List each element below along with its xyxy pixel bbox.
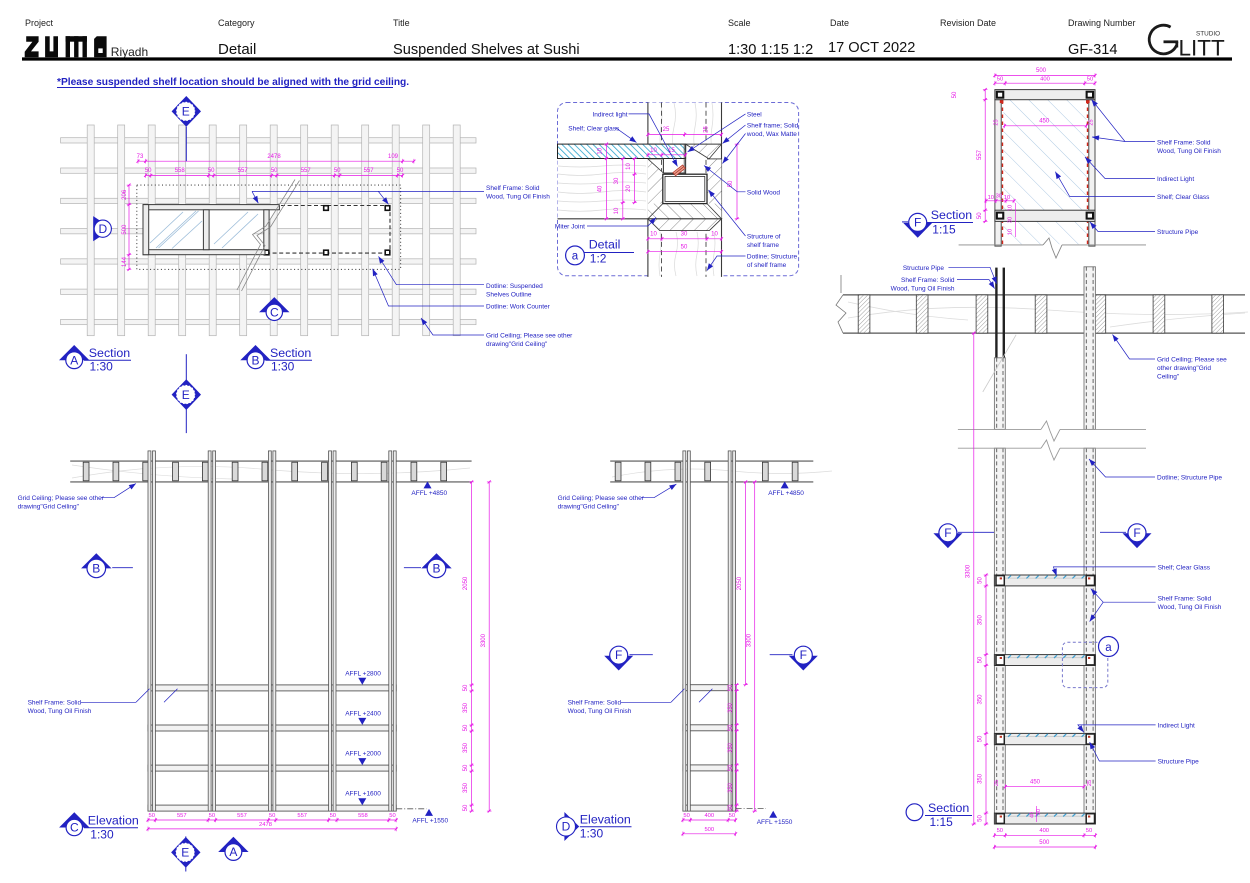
svg-text:wood, Wax Matte: wood, Wax Matte xyxy=(746,131,797,138)
svg-text:50: 50 xyxy=(978,577,984,584)
svg-text:a: a xyxy=(1105,642,1112,654)
svg-text:30: 30 xyxy=(1008,217,1014,223)
svg-text:1:30 1:15 1:2: 1:30 1:15 1:2 xyxy=(728,42,813,58)
svg-text:Wood, Tung Oil Finish: Wood, Tung Oil Finish xyxy=(568,708,632,715)
svg-text:350: 350 xyxy=(728,742,734,753)
svg-text:AFFL +1550: AFFL +1550 xyxy=(412,817,448,824)
svg-text:Date: Date xyxy=(830,18,849,28)
svg-text:Riyadh: Riyadh xyxy=(111,45,148,59)
svg-text:2050: 2050 xyxy=(463,576,469,590)
svg-text:350: 350 xyxy=(728,782,734,793)
svg-text:C: C xyxy=(270,306,279,320)
svg-text:109: 109 xyxy=(388,154,399,160)
svg-text:F: F xyxy=(800,648,807,662)
svg-text:Grid Ceiling; Please see other: Grid Ceiling; Please see other xyxy=(486,333,573,340)
svg-text:50: 50 xyxy=(334,168,341,174)
svg-text:50: 50 xyxy=(271,168,278,174)
svg-text:Elevation: Elevation xyxy=(580,813,631,827)
svg-text:50: 50 xyxy=(330,813,336,819)
svg-text:50: 50 xyxy=(269,813,275,819)
svg-text:3300: 3300 xyxy=(481,633,487,647)
svg-text:50: 50 xyxy=(148,813,154,819)
svg-text:3300: 3300 xyxy=(965,564,971,578)
svg-text:Section: Section xyxy=(270,346,311,360)
svg-text:50: 50 xyxy=(208,168,215,174)
svg-text:Shelves Outline: Shelves Outline xyxy=(486,292,532,299)
svg-text:40: 40 xyxy=(598,185,604,192)
svg-text:50: 50 xyxy=(978,735,984,742)
svg-text:Grid Ceiling; Please see other: Grid Ceiling; Please see other xyxy=(18,495,105,502)
svg-text:Scale: Scale xyxy=(728,18,751,28)
svg-text:50: 50 xyxy=(389,813,395,819)
svg-text:20: 20 xyxy=(626,185,632,192)
svg-text:10: 10 xyxy=(650,231,657,237)
svg-text:557: 557 xyxy=(177,813,187,819)
svg-text:Dotline: Work Counter: Dotline: Work Counter xyxy=(486,304,551,311)
svg-text:50: 50 xyxy=(397,168,404,174)
svg-text:450: 450 xyxy=(1030,780,1041,786)
svg-text:Steel: Steel xyxy=(747,111,762,118)
svg-text:30: 30 xyxy=(996,193,1002,199)
svg-text:50: 50 xyxy=(1086,828,1092,834)
svg-text:558: 558 xyxy=(175,168,186,174)
svg-text:Revision Date: Revision Date xyxy=(940,18,996,28)
svg-text:500: 500 xyxy=(1036,68,1047,74)
svg-text:Indirect Light: Indirect Light xyxy=(1158,723,1195,730)
svg-text:10: 10 xyxy=(1008,205,1014,211)
svg-text:450: 450 xyxy=(1039,119,1050,125)
svg-text:50: 50 xyxy=(681,244,688,250)
svg-text:Dotline: Suspended: Dotline: Suspended xyxy=(486,283,543,290)
svg-text:B: B xyxy=(251,353,259,367)
svg-text:10: 10 xyxy=(598,147,604,154)
svg-text:10: 10 xyxy=(614,207,620,214)
svg-text:Wood, Tung Oil Finish: Wood, Tung Oil Finish xyxy=(486,194,550,201)
svg-text:350: 350 xyxy=(978,694,984,705)
svg-text:2478: 2478 xyxy=(267,154,281,160)
svg-text:25: 25 xyxy=(704,126,710,133)
svg-text:500: 500 xyxy=(122,224,128,235)
svg-text:50: 50 xyxy=(463,764,469,771)
svg-text:400: 400 xyxy=(1040,77,1050,83)
svg-text:F: F xyxy=(615,648,622,662)
svg-text:D: D xyxy=(98,222,107,236)
svg-text:1:30: 1:30 xyxy=(271,360,295,374)
svg-text:3300: 3300 xyxy=(746,633,752,647)
svg-text:F: F xyxy=(914,215,921,229)
svg-text:Elevation: Elevation xyxy=(88,814,139,828)
svg-text:Miter Joint: Miter Joint xyxy=(555,223,585,230)
svg-text:30: 30 xyxy=(614,177,620,184)
svg-text:Shelf; Clear Glass: Shelf; Clear Glass xyxy=(1158,565,1211,572)
svg-text:350: 350 xyxy=(978,615,984,626)
svg-text:Suspended Shelves at Sushi: Suspended Shelves at Sushi xyxy=(393,42,580,58)
svg-text:Grid Ceiling; Please see: Grid Ceiling; Please see xyxy=(1157,357,1227,364)
svg-text:other drawing"Grid: other drawing"Grid xyxy=(1157,365,1211,372)
svg-text:AFFL +1550: AFFL +1550 xyxy=(757,819,793,826)
svg-text:25: 25 xyxy=(663,127,670,133)
svg-text:50: 50 xyxy=(145,168,152,174)
svg-text:Section: Section xyxy=(89,346,130,360)
svg-text:144: 144 xyxy=(122,256,128,267)
svg-text:Indirect Light: Indirect Light xyxy=(1157,176,1194,183)
svg-text:50: 50 xyxy=(978,656,984,663)
svg-text:1:30: 1:30 xyxy=(90,360,114,374)
svg-text:558: 558 xyxy=(358,813,368,819)
svg-text:Shelf Frame: Solid: Shelf Frame: Solid xyxy=(486,185,540,192)
svg-text:Wood, Tung Oil Finish: Wood, Tung Oil Finish xyxy=(1158,604,1222,611)
svg-text:10: 10 xyxy=(711,231,718,237)
svg-text:F: F xyxy=(1133,526,1140,540)
svg-text:*Please suspended shelf locati: *Please suspended shelf location should … xyxy=(57,77,409,88)
svg-text:Section: Section xyxy=(931,208,972,222)
svg-text:206: 206 xyxy=(122,189,128,200)
svg-text:50: 50 xyxy=(728,804,734,811)
svg-text:Wood, Tung Oil Finish: Wood, Tung Oil Finish xyxy=(891,286,955,293)
svg-text:10: 10 xyxy=(626,163,632,170)
svg-text:B: B xyxy=(92,562,100,576)
svg-text:Dotline; Structure Pipe: Dotline; Structure Pipe xyxy=(1157,475,1222,482)
svg-text:50: 50 xyxy=(1036,809,1042,815)
svg-text:25: 25 xyxy=(994,119,1000,125)
svg-text:Solid Wood: Solid Wood xyxy=(747,190,781,197)
svg-text:557: 557 xyxy=(238,168,249,174)
svg-text:drawing"Grid Ceiling": drawing"Grid Ceiling" xyxy=(486,341,548,348)
svg-text:50: 50 xyxy=(463,724,469,731)
svg-text:Shelf frame; Solid: Shelf frame; Solid xyxy=(747,123,799,130)
svg-text:557: 557 xyxy=(364,168,375,174)
svg-text:AFFL +2800: AFFL +2800 xyxy=(345,670,381,677)
svg-text:50: 50 xyxy=(683,813,689,819)
svg-text:17 OCT 2022: 17 OCT 2022 xyxy=(828,40,915,56)
svg-text:Shelf Frame: Solid: Shelf Frame: Solid xyxy=(901,277,955,284)
svg-text:500: 500 xyxy=(1039,840,1050,846)
svg-text:50: 50 xyxy=(728,684,734,691)
svg-text:350: 350 xyxy=(728,702,734,713)
svg-text:Structure of: Structure of xyxy=(747,234,781,241)
svg-text:Shelf; Clear glass: Shelf; Clear glass xyxy=(568,126,620,133)
svg-text:1:30: 1:30 xyxy=(90,828,114,842)
svg-text:50: 50 xyxy=(729,813,735,819)
svg-text:50: 50 xyxy=(997,77,1003,83)
svg-text:AFFL +4850: AFFL +4850 xyxy=(768,490,804,497)
svg-text:50: 50 xyxy=(728,180,734,187)
svg-text:Shelf Frame: Solid: Shelf Frame: Solid xyxy=(1158,596,1212,603)
svg-text:40: 40 xyxy=(1030,812,1036,818)
svg-text:557: 557 xyxy=(297,813,307,819)
svg-text:1:2: 1:2 xyxy=(590,252,607,266)
svg-text:E: E xyxy=(182,388,190,402)
svg-text:25: 25 xyxy=(1089,119,1095,125)
svg-text:AFFL +4850: AFFL +4850 xyxy=(411,490,447,497)
svg-text:A: A xyxy=(70,353,78,367)
svg-text:73: 73 xyxy=(137,154,144,160)
svg-text:B: B xyxy=(432,562,440,576)
svg-text:AFFL +2000: AFFL +2000 xyxy=(345,751,381,758)
svg-text:1:15: 1:15 xyxy=(932,223,956,237)
svg-text:25: 25 xyxy=(994,780,1000,786)
svg-text:Shelf; Clear Glass: Shelf; Clear Glass xyxy=(1157,194,1210,201)
svg-text:Grid Ceiling; Please see other: Grid Ceiling; Please see other xyxy=(558,495,645,502)
svg-text:C: C xyxy=(70,821,79,835)
svg-text:30: 30 xyxy=(681,231,688,237)
svg-text:Structure Pipe: Structure Pipe xyxy=(1157,229,1199,236)
svg-text:drawing"Grid Ceiling": drawing"Grid Ceiling" xyxy=(18,504,80,511)
svg-text:Shelf Frame: Solid: Shelf Frame: Solid xyxy=(568,700,622,707)
svg-text:557: 557 xyxy=(237,813,247,819)
svg-text:F: F xyxy=(944,526,951,540)
svg-text:Section: Section xyxy=(928,801,969,815)
svg-text:Dotline; Structure: Dotline; Structure xyxy=(747,254,798,261)
svg-text:Indirect light: Indirect light xyxy=(592,111,627,118)
svg-text:A: A xyxy=(229,845,237,859)
svg-text:10: 10 xyxy=(1008,229,1014,235)
svg-text:Detail: Detail xyxy=(589,238,621,252)
svg-text:10: 10 xyxy=(650,148,657,154)
svg-text:Wood, Tung Oil Finish: Wood, Tung Oil Finish xyxy=(28,708,92,715)
svg-text:Ceiling": Ceiling" xyxy=(1157,374,1180,381)
svg-text:GF-314: GF-314 xyxy=(1068,42,1117,58)
svg-text:D: D xyxy=(562,820,571,834)
svg-text:Title: Title xyxy=(393,18,410,28)
svg-text:shelf frame: shelf frame xyxy=(747,242,780,249)
svg-text:350: 350 xyxy=(978,773,984,784)
svg-text:50: 50 xyxy=(1087,77,1093,83)
svg-text:557: 557 xyxy=(977,149,983,160)
svg-text:350: 350 xyxy=(463,742,469,753)
svg-text:350: 350 xyxy=(463,782,469,793)
svg-text:1:30: 1:30 xyxy=(580,827,604,841)
svg-text:E: E xyxy=(182,105,190,119)
svg-text:Wood, Tung Oil Finish: Wood, Tung Oil Finish xyxy=(1157,148,1221,155)
svg-text:STUDIO: STUDIO xyxy=(1196,31,1220,38)
svg-text:50: 50 xyxy=(978,815,984,822)
svg-text:of shelf frame: of shelf frame xyxy=(747,262,787,269)
svg-text:AFFL +2400: AFFL +2400 xyxy=(345,710,381,717)
svg-text:50: 50 xyxy=(952,91,958,98)
svg-text:Detail: Detail xyxy=(218,41,256,58)
svg-text:drawing"Grid Ceiling": drawing"Grid Ceiling" xyxy=(558,504,620,511)
svg-text:Shelf Frame: Solid: Shelf Frame: Solid xyxy=(1157,140,1211,147)
svg-text:50: 50 xyxy=(997,828,1003,834)
svg-text:50: 50 xyxy=(728,724,734,731)
svg-text:400: 400 xyxy=(1039,828,1049,834)
svg-text:500: 500 xyxy=(704,827,714,833)
svg-text:E: E xyxy=(181,846,189,860)
svg-text:LITT: LITT xyxy=(1179,36,1226,61)
svg-text:Category: Category xyxy=(218,18,255,28)
svg-text:10: 10 xyxy=(988,195,994,201)
svg-text:50: 50 xyxy=(977,212,983,219)
svg-text:2478: 2478 xyxy=(259,822,272,828)
svg-text:Project: Project xyxy=(25,18,54,28)
svg-text:50: 50 xyxy=(209,813,215,819)
svg-text:1:15: 1:15 xyxy=(930,815,954,829)
svg-text:AFFL +1600: AFFL +1600 xyxy=(345,791,381,798)
svg-text:25: 25 xyxy=(1087,780,1093,786)
svg-text:557: 557 xyxy=(301,168,312,174)
svg-text:2050: 2050 xyxy=(737,576,743,590)
svg-text:a: a xyxy=(572,251,579,263)
svg-text:400: 400 xyxy=(704,813,714,819)
svg-text:350: 350 xyxy=(463,702,469,713)
svg-text:Structure Pipe: Structure Pipe xyxy=(903,265,945,272)
svg-text:50: 50 xyxy=(463,804,469,811)
svg-text:Structure Pipe: Structure Pipe xyxy=(1158,759,1200,766)
svg-text:50: 50 xyxy=(463,684,469,691)
svg-text:50: 50 xyxy=(728,764,734,771)
svg-text:Drawing Number: Drawing Number xyxy=(1068,18,1136,28)
svg-text:Shelf Frame: Solid: Shelf Frame: Solid xyxy=(28,700,82,707)
